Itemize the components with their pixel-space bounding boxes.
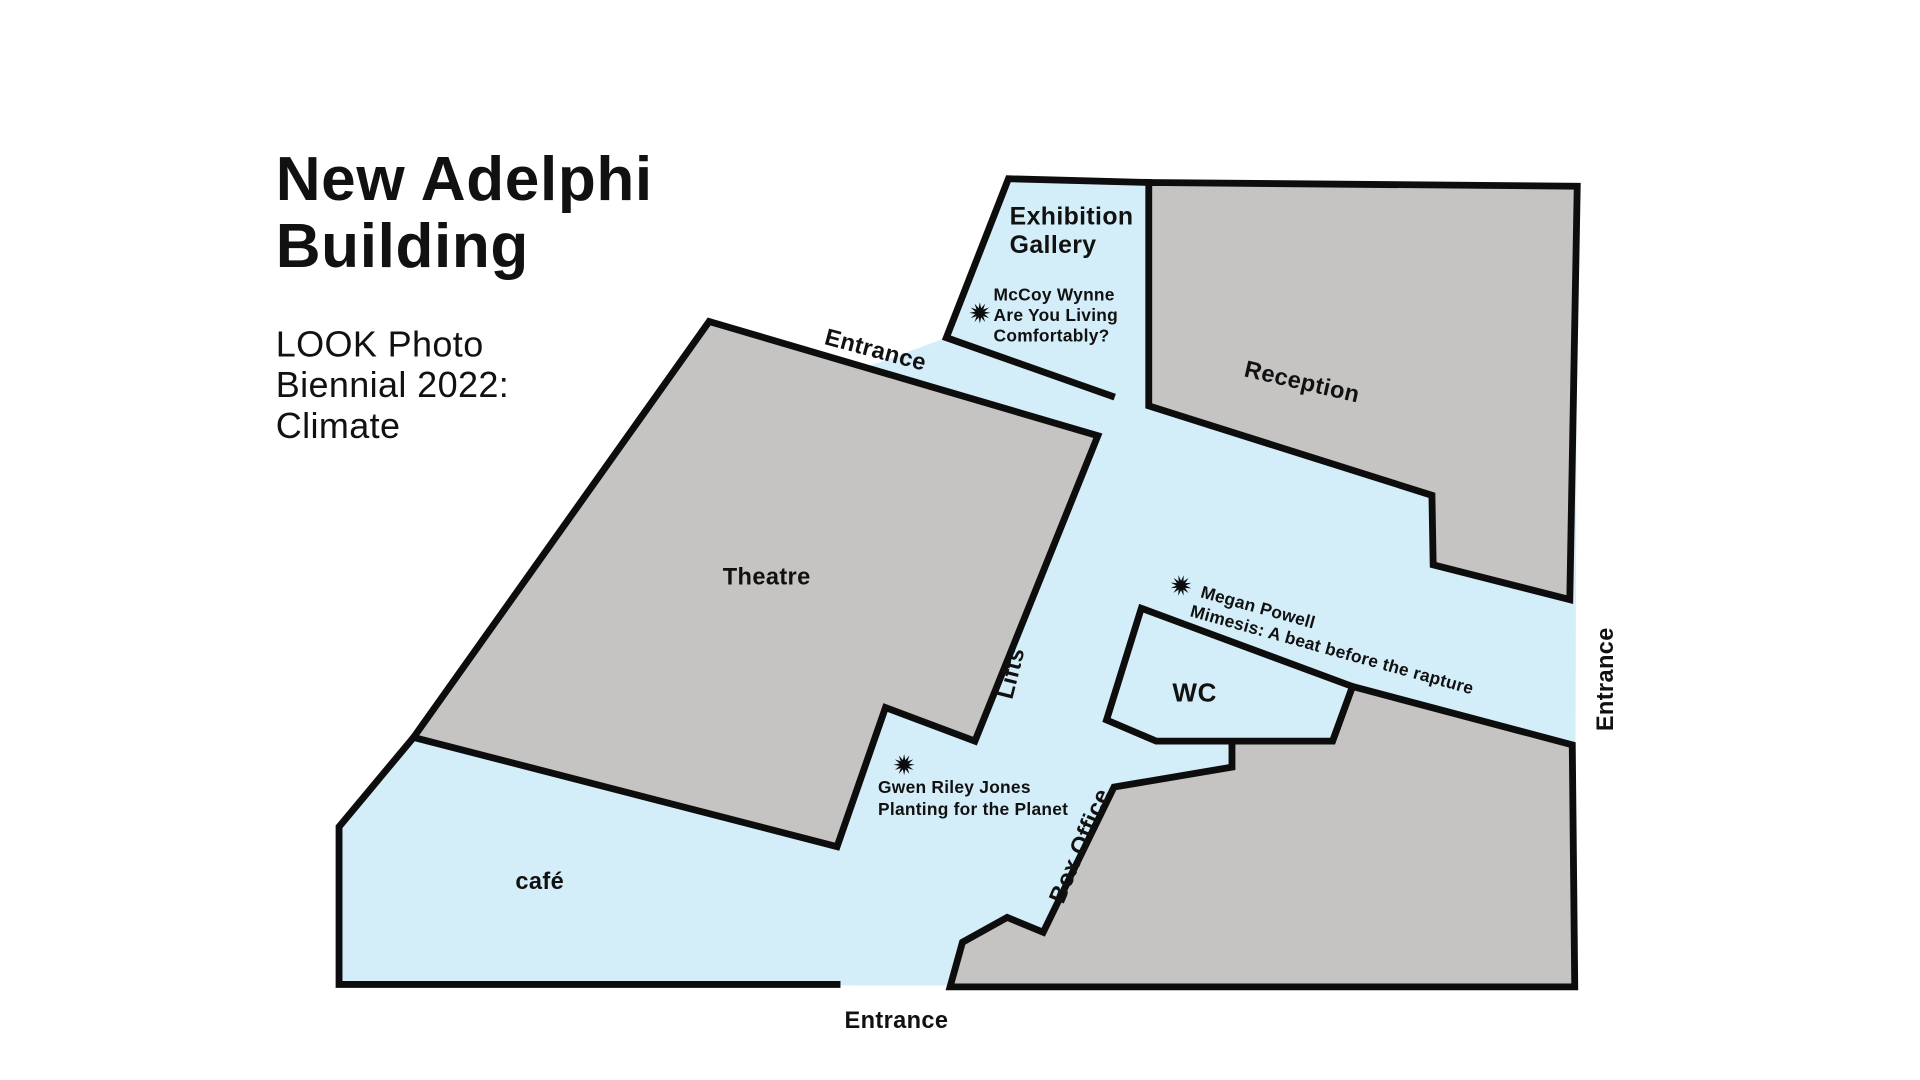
- page-title-line1: New Adelphi: [276, 145, 653, 214]
- cafe-label: café: [515, 868, 564, 894]
- entrance-label-right: Entrance: [1592, 627, 1618, 731]
- theatre-label: Theatre: [723, 564, 811, 590]
- wc-label: WC: [1172, 677, 1217, 707]
- page-subtitle-line1: LOOK Photo: [276, 323, 484, 364]
- floor-plan-map: New Adelphi Building LOOK Photo Biennial…: [0, 0, 1920, 1080]
- exhibit-work-line2: Comfortably?: [994, 325, 1110, 345]
- page-title-line2: Building: [276, 212, 529, 281]
- page-subtitle-line3: Climate: [276, 405, 401, 446]
- exhibition-gallery-label-line2: Gallery: [1010, 232, 1097, 259]
- page-subtitle-line2: Biennial 2022:: [276, 364, 509, 405]
- exhibit-work-line1: Are You Living: [994, 305, 1119, 325]
- entrance-label-bottom: Entrance: [845, 1007, 949, 1033]
- exhibit-work: Planting for the Planet: [878, 799, 1068, 819]
- exhibit-artist: McCoy Wynne: [994, 284, 1115, 304]
- exhibit-artist: Gwen Riley Jones: [878, 777, 1031, 797]
- exhibition-gallery-label-line1: Exhibition: [1010, 204, 1134, 231]
